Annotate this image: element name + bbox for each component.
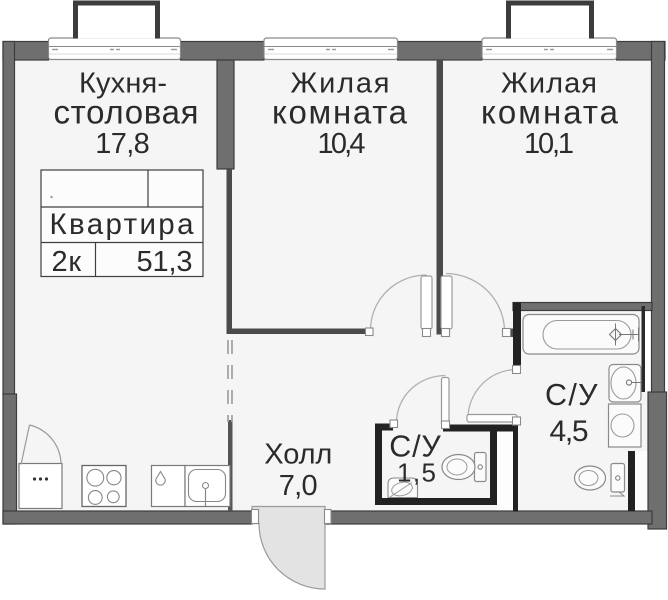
- svg-text:51,3: 51,3: [137, 246, 193, 278]
- svg-text:Холл: Холл: [264, 439, 332, 471]
- svg-text:2к: 2к: [52, 246, 82, 278]
- svg-text:7,0: 7,0: [279, 470, 318, 502]
- svg-text:1,5: 1,5: [397, 458, 436, 488]
- svg-text:10,1: 10,1: [524, 128, 574, 160]
- svg-text:С/У: С/У: [545, 378, 598, 412]
- svg-text:17,8: 17,8: [95, 128, 150, 160]
- svg-text:10,4: 10,4: [318, 128, 366, 160]
- svg-text:столовая: столовая: [54, 94, 199, 131]
- svg-text:4,5: 4,5: [550, 415, 589, 448]
